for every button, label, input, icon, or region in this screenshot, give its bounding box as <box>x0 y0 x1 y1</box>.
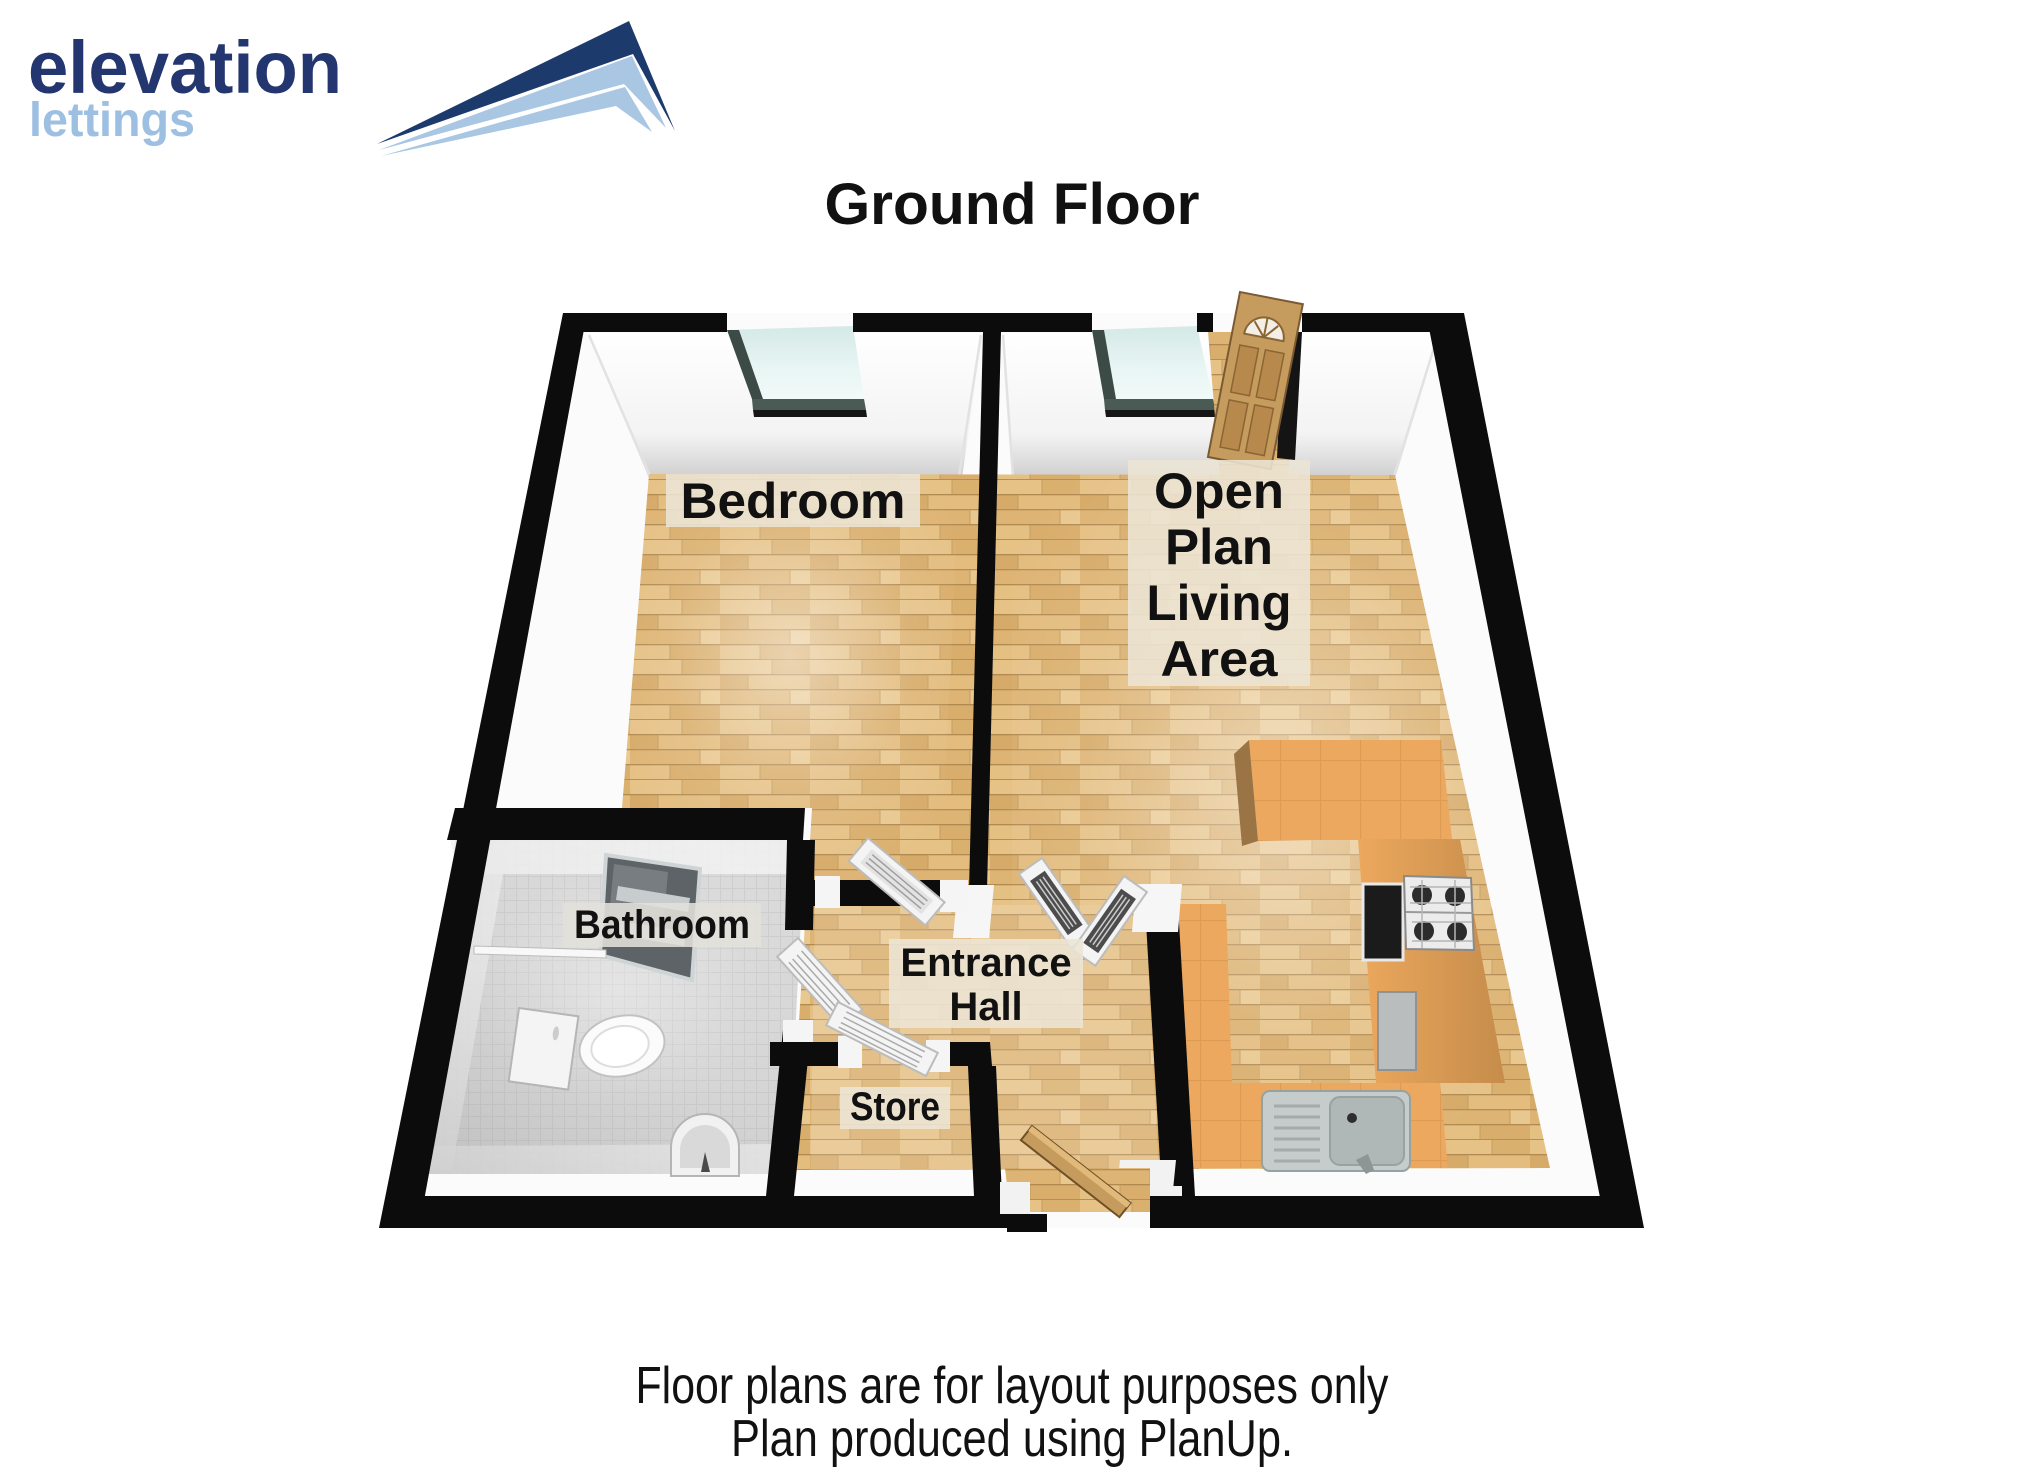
svg-text:Entrance: Entrance <box>900 941 1071 985</box>
svg-text:Hall: Hall <box>949 985 1022 1029</box>
svg-text:Bathroom: Bathroom <box>574 903 750 947</box>
svg-text:Bedroom: Bedroom <box>681 473 906 529</box>
svg-text:Plan: Plan <box>1165 519 1273 575</box>
svg-text:Floor plans are for layout pur: Floor plans are for layout purposes only <box>636 1357 1389 1415</box>
svg-text:Ground Floor: Ground Floor <box>825 172 1200 237</box>
svg-text:Plan produced using PlanUp.: Plan produced using PlanUp. <box>731 1410 1293 1468</box>
svg-text:Open: Open <box>1154 463 1284 519</box>
svg-text:Area: Area <box>1161 631 1279 687</box>
svg-text:Store: Store <box>850 1085 940 1129</box>
svg-text:lettings: lettings <box>29 94 195 147</box>
svg-text:Living: Living <box>1147 575 1292 631</box>
